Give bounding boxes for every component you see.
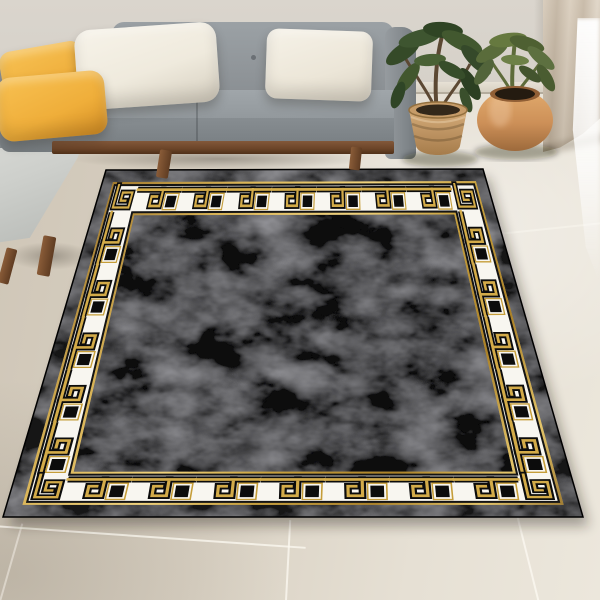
- plant-left: [382, 20, 495, 167]
- potted-plants: [0, 0, 600, 600]
- basket-planter: [409, 102, 467, 155]
- living-room-scene: [0, 0, 600, 600]
- terracotta-planter: [477, 86, 553, 151]
- plant-right: [470, 30, 558, 160]
